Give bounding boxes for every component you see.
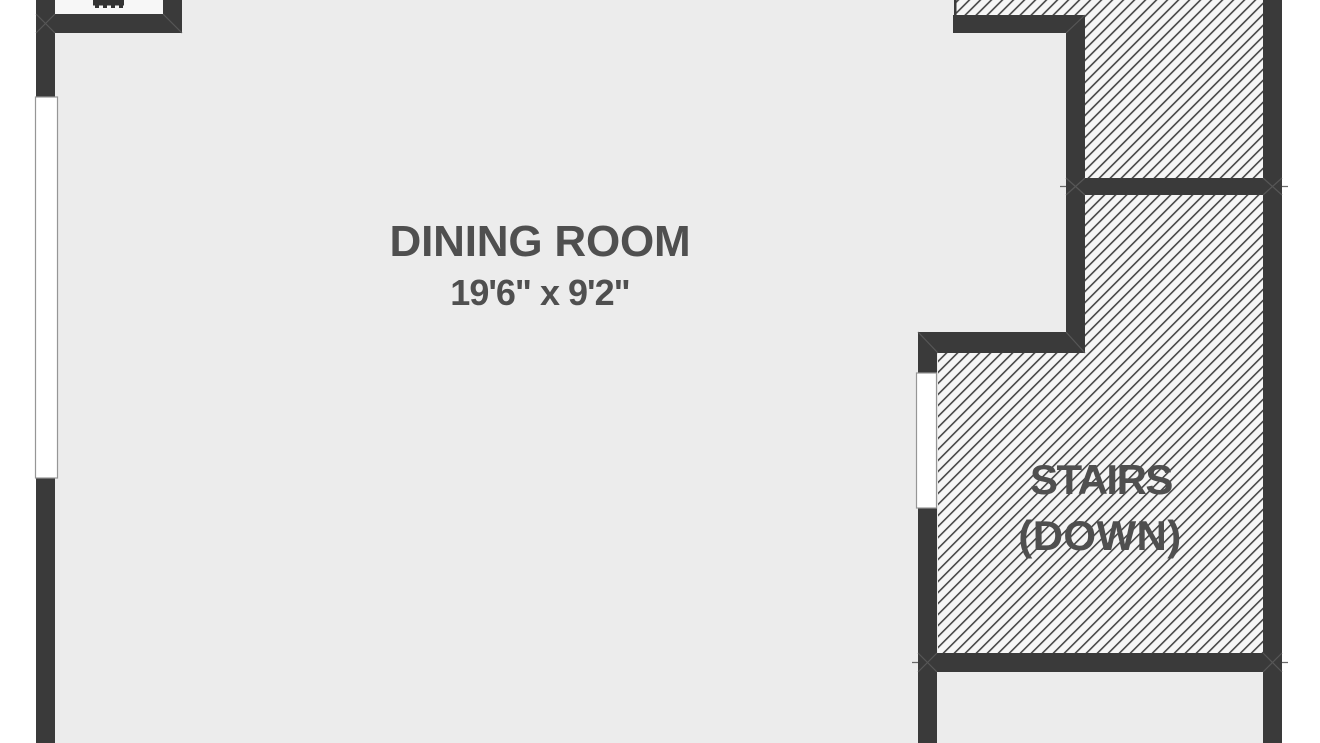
svg-text:(DOWN): (DOWN) (1018, 512, 1181, 559)
svg-text:19'6" x 9'2": 19'6" x 9'2" (450, 272, 629, 313)
svg-text:DINING ROOM: DINING ROOM (390, 217, 691, 266)
svg-text:STAIRS: STAIRS (1030, 456, 1172, 503)
